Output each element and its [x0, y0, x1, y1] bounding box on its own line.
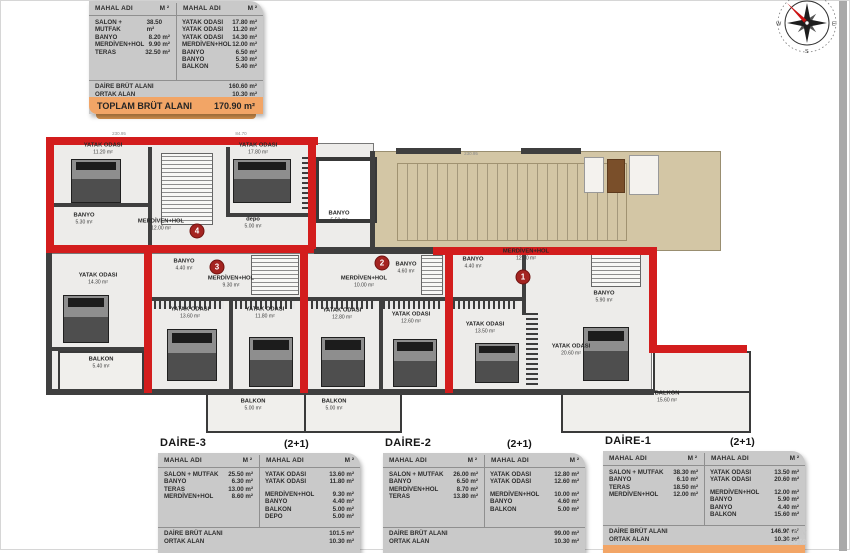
table-left-column: SALON + MUTFAK38.30 m² BANYO6.10 m² TERA… — [603, 469, 704, 518]
column-header-unit: M ² — [673, 455, 703, 462]
gross-area-label: DAİRE BRÜT ALANI — [95, 83, 154, 91]
wardrobe-icon — [526, 313, 538, 385]
room-area: 20.60 m² — [774, 476, 799, 483]
dimension-label: 230.95 — [112, 131, 126, 136]
total-row-strip — [603, 545, 805, 553]
room-area: 4.60 m² — [396, 268, 417, 274]
table-row: SALON + MUTFAK38.30 m² — [603, 469, 704, 476]
room-area: 17.80 m² — [239, 149, 278, 155]
red-wall-segment — [46, 137, 54, 253]
column-header: MAHAL ADI — [89, 5, 145, 12]
table-row: BANYO5.90 m² — [704, 496, 805, 503]
room-name: YATAK ODASI — [265, 471, 306, 478]
room-area: 13.60 m² — [329, 471, 354, 478]
common-area-row: ORTAK ALAN10.30 m² — [603, 536, 805, 544]
table-right-column: YATAK ODASI12.80 m² YATAK ODASI12.60 m² … — [484, 471, 585, 513]
apartment-type: (2+1) — [507, 438, 532, 450]
room-name: YATAK ODASI — [182, 19, 223, 26]
table-row: YATAK ODASI11.80 m² — [259, 478, 360, 485]
room-name: DEPO — [265, 513, 283, 520]
room-area: 6.50 m² — [457, 478, 478, 485]
room-name: BALKON — [89, 357, 114, 363]
table-row: BANYO4.40 m² — [259, 498, 360, 505]
room-area: 5.00 m² — [333, 513, 354, 520]
wardrobe-icon — [453, 301, 517, 309]
room-area: 11.80 m² — [246, 313, 285, 319]
room-area: 5.40 m² — [89, 363, 114, 369]
column-header-unit: M ² — [145, 5, 175, 12]
table-row: BANYO6.50 m² — [383, 478, 484, 485]
gross-area-row: DAİRE BRÜT ALANI101.5 m² — [158, 530, 360, 538]
gross-area-row: DAİRE BRÜT ALANI146.90 m² — [603, 528, 805, 536]
room-name: MERDİVEN+HOL — [265, 491, 314, 498]
room-name: BALKON — [490, 506, 516, 513]
total-label: TOPLAM BRÜT ALANI — [97, 101, 192, 111]
table-row: MERDİVEN+HOL8.60 m² — [158, 493, 259, 500]
table-row: BANYO8.20 m² — [89, 34, 176, 41]
column-header-unit: M ² — [775, 455, 805, 462]
table-icon — [607, 159, 625, 193]
room-label: YATAK ODASI13.60 m² — [171, 307, 210, 320]
room-name: BALKON — [655, 391, 680, 397]
table-row: SALON + MUTFAK25.50 m² — [158, 471, 259, 478]
room-area: 13.50 m² — [774, 469, 799, 476]
room-name: BANYO — [490, 498, 512, 505]
red-wall-segment — [649, 247, 657, 353]
wall-segment — [226, 147, 230, 215]
table-row: TERAS13.00 m² — [158, 486, 259, 493]
room-area: 9.90 m² — [149, 41, 170, 48]
room-name: BANYO — [95, 34, 117, 41]
room-area: 12.60 m² — [554, 478, 579, 485]
room-area: 4.40 m² — [174, 265, 195, 271]
table-row: BALKON5.00 m² — [259, 506, 360, 513]
gross-area-value: 99.00 m² — [554, 530, 579, 538]
room-name: MERDİVEN+HOL — [182, 41, 231, 48]
room-name: BANYO — [710, 496, 732, 503]
common-area-value: 10.30 m² — [329, 538, 354, 546]
room-label: BANYO5.30 m² — [74, 213, 95, 226]
gross-area-label: DAİRE BRÜT ALANI — [389, 530, 448, 538]
room-label: BANYO4.60 m² — [396, 262, 417, 275]
room-name: SALON + MUTFAK — [164, 471, 218, 478]
room-area: 5.00 m² — [241, 405, 266, 411]
table-row: TERAS13.80 m² — [383, 493, 484, 500]
table-right-column: YATAK ODASI13.60 m² YATAK ODASI11.80 m² … — [259, 471, 360, 520]
column-divider — [704, 453, 705, 525]
table-row: BALKON15.60 m² — [704, 511, 805, 518]
room-area: 5.90 m² — [778, 496, 799, 503]
room-label: BANYO5.50 m² — [329, 211, 350, 224]
room-label: MERDİVEN+HOL10.00 m² — [341, 276, 387, 289]
lounger-icon — [629, 155, 659, 195]
table-footer: DAİRE BRÜT ALANI99.00 m² ORTAK ALAN10.30… — [383, 527, 585, 545]
room-name: MERDİVEN+HOL — [609, 491, 658, 498]
table-row: YATAK ODASI11.20 m² — [176, 26, 263, 33]
red-wall-segment — [649, 345, 747, 353]
wall-segment — [226, 213, 314, 217]
room-area: 11.20 m² — [84, 149, 123, 155]
gross-area-row: DAİRE BRÜT ALANI160.60 m² — [89, 83, 263, 91]
room-label: BALKON5.00 m² — [241, 399, 266, 412]
room-area: 20.60 m² — [552, 350, 591, 356]
room-name: BANYO — [609, 476, 631, 483]
table-row: YATAK ODASI13.60 m² — [259, 471, 360, 478]
total-gross-area-row: TOPLAM BRÜT ALANI170.90 m² — [89, 97, 263, 114]
room-name: YATAK ODASI — [710, 476, 751, 483]
apartment-type: (2+1) — [730, 436, 755, 448]
table-row: YATAK ODASI13.50 m² — [704, 469, 805, 476]
column-header-unit: M ² — [233, 5, 263, 12]
daire-1-table: MAHAL ADI M ² MAHAL ADI M ² SALON + MUTF… — [603, 451, 805, 553]
table-row: SALON + MUTFAK38.50 m² — [89, 19, 176, 34]
room-name: YATAK ODASI — [323, 308, 362, 314]
room-label: MERDİVEN+HOL9.30 m² — [208, 276, 254, 289]
room-label: YATAK ODASI14.30 m² — [79, 273, 118, 286]
room-name: BANYO — [74, 213, 95, 219]
room-area: 13.50 m² — [466, 328, 505, 334]
red-wall-segment — [308, 137, 316, 249]
room-name: BALKON — [265, 506, 291, 513]
wall-segment — [50, 203, 150, 207]
room-area: 8.70 m² — [457, 486, 478, 493]
table-row: MERDİVEN+HOL12.00 m² — [704, 489, 805, 496]
bed-icon — [249, 337, 293, 387]
room-area: 12.60 m² — [392, 318, 431, 324]
room-name: BALKON — [710, 511, 736, 518]
column-header-unit: M ² — [330, 457, 360, 464]
red-wall-segment — [46, 245, 314, 253]
room-area: 4.60 m² — [558, 498, 579, 505]
room-label: MERDİVEN+HOL12.00 m² — [138, 219, 184, 232]
wall-segment — [379, 299, 383, 391]
room-name: MERDİVEN+HOL — [710, 489, 759, 496]
compass-south-label: S — [805, 49, 809, 55]
room-area: 5.50 m² — [329, 217, 350, 223]
room-name: MERDİVEN+HOL — [389, 486, 438, 493]
room-area: 12.00 m² — [503, 255, 549, 261]
room-label: YATAK ODASI11.80 m² — [246, 307, 285, 320]
room-name: MERDİVEN+HOL — [164, 493, 213, 500]
room-name: BANYO — [396, 262, 417, 268]
room-name: MERDİVEN+HOL — [490, 491, 539, 498]
table-row: MERDİVEN+HOL12.00 m² — [176, 41, 263, 48]
wall-segment — [229, 299, 233, 391]
room-name: YATAK ODASI — [490, 478, 531, 485]
common-area-label: ORTAK ALAN — [609, 536, 649, 544]
stairs-icon — [591, 253, 641, 287]
common-area-value: 10.30 m² — [554, 538, 579, 546]
bed-icon — [321, 337, 365, 387]
table-row: YATAK ODASI17.80 m² — [176, 19, 263, 26]
room-area: 13.00 m² — [228, 486, 253, 493]
wall-segment — [314, 247, 436, 254]
room-label: BANYO5.90 m² — [594, 291, 615, 304]
lounger-icon — [584, 157, 604, 193]
column-header-unit: M ² — [555, 457, 585, 464]
red-wall-segment — [300, 253, 308, 393]
room-name: BANYO — [329, 211, 350, 217]
daire-3-table: MAHAL ADI M ² MAHAL ADI M ² SALON + MUTF… — [158, 453, 360, 553]
table-footer: DAİRE BRÜT ALANI160.60 m² ORTAK ALAN10.3… — [89, 80, 263, 98]
stairs-icon — [251, 255, 299, 295]
room-name: YATAK ODASI — [710, 469, 751, 476]
wall-segment — [370, 151, 375, 249]
unit-number-badge: 1 — [516, 270, 531, 285]
room-area: 32.50 m² — [145, 49, 170, 56]
room-name: MERDİVEN+HOL — [95, 41, 144, 48]
room-area: 6.10 m² — [677, 476, 698, 483]
room-name: BANYO — [174, 259, 195, 265]
room-label: YATAK ODASI11.20 m² — [84, 143, 123, 156]
wall-segment — [521, 148, 581, 154]
column-header-unit: M ² — [453, 457, 483, 464]
bed-icon — [393, 339, 437, 387]
table-footer: DAİRE BRÜT ALANI101.5 m² ORTAK ALAN10.30… — [158, 527, 360, 545]
column-divider — [484, 455, 485, 527]
room-area: 5.00 m² — [333, 506, 354, 513]
table-row: BALKON5.40 m² — [176, 63, 263, 70]
table-row: BANYO4.40 m² — [704, 504, 805, 511]
bed-icon — [167, 329, 217, 381]
room-name: YATAK ODASI — [490, 471, 531, 478]
room-name: YATAK ODASI — [182, 34, 223, 41]
page: { "table_header": {"col": "MAHAL ADI", "… — [0, 0, 850, 550]
bed-icon — [233, 159, 291, 203]
room-name: BANYO — [182, 56, 204, 63]
room-area: 6.30 m² — [232, 478, 253, 485]
room-name: MERDİVEN+HOL — [503, 249, 549, 255]
table-row: SALON + MUTFAK26.00 m² — [383, 471, 484, 478]
unit-number-badge: 4 — [190, 224, 205, 239]
unit-number-badge: 2 — [375, 256, 390, 271]
room-area: 15.60 m² — [655, 397, 680, 403]
table-row: DEPO5.00 m² — [259, 513, 360, 520]
red-wall-segment — [144, 253, 152, 393]
gross-area-value: 101.5 m² — [329, 530, 354, 538]
room-area: 8.60 m² — [232, 493, 253, 500]
room-name: TERAS — [609, 484, 630, 491]
wall-segment — [453, 297, 524, 301]
room-label: BANYO4.40 m² — [463, 257, 484, 270]
stairs-icon — [161, 153, 213, 225]
room-area: 5.00 m² — [322, 405, 347, 411]
wardrobe-icon — [383, 301, 441, 309]
gross-area-label: DAİRE BRÜT ALANI — [164, 530, 223, 538]
wall-segment — [46, 253, 52, 393]
room-label: depo5.00 m² — [245, 217, 262, 230]
room-area: 9.30 m² — [333, 491, 354, 498]
room-area: 11.20 m² — [233, 26, 257, 33]
wall-segment — [50, 347, 146, 351]
apartment-type: (2+1) — [284, 438, 309, 450]
room-name: MERDİVEN+HOL — [341, 276, 387, 282]
room-name: BALKON — [322, 399, 347, 405]
room-label: YATAK ODASI17.80 m² — [239, 143, 278, 156]
table-row: BANYO6.50 m² — [176, 49, 263, 56]
common-area-label: ORTAK ALAN — [164, 538, 204, 546]
room-name: YATAK ODASI — [246, 307, 285, 313]
apartment-title: DAİRE-2 — [385, 437, 431, 449]
table-row: MERDİVEN+HOL10.00 m² — [484, 491, 585, 498]
wall-segment — [46, 389, 150, 395]
dimension-label: 230.95 — [464, 151, 478, 156]
room-name: SALON + MUTFAK — [609, 469, 663, 476]
table-row: BALKON5.00 m² — [484, 506, 585, 513]
compass-west-label: W — [776, 22, 782, 28]
column-header: MAHAL ADI — [258, 457, 330, 464]
room-name: BALKON — [182, 63, 208, 70]
table-row: YATAK ODASI20.60 m² — [704, 476, 805, 483]
apartment-title: DAİRE-1 — [605, 435, 651, 447]
room-name: YATAK ODASI — [265, 478, 306, 485]
watermark-line: Activ — [787, 527, 807, 537]
column-header: MAHAL ADI — [158, 457, 228, 464]
table-left-column: SALON + MUTFAK38.50 m² BANYO8.20 m² MERD… — [89, 19, 176, 71]
room-area: 5.40 m² — [236, 63, 257, 70]
room-name: BANYO — [594, 291, 615, 297]
room-area: 12.00 m² — [232, 41, 257, 48]
table-row: YATAK ODASI12.80 m² — [484, 471, 585, 478]
room-area: 12.80 m² — [554, 471, 579, 478]
table-row: BANYO6.10 m² — [603, 476, 704, 483]
gross-area-value: 160.60 m² — [229, 83, 257, 91]
room-area: 18.50 m² — [673, 484, 698, 491]
table-row: BANYO4.60 m² — [484, 498, 585, 505]
table-footer: DAİRE BRÜT ALANI146.90 m² ORTAK ALAN10.3… — [603, 525, 805, 543]
wall-segment — [150, 389, 654, 395]
room-area: 5.00 m² — [558, 506, 579, 513]
wall-segment — [396, 148, 461, 154]
column-divider — [259, 455, 260, 527]
room-name: YATAK ODASI — [392, 312, 431, 318]
table-row: YATAK ODASI14.30 m² — [176, 34, 263, 41]
red-wall-segment — [445, 253, 453, 393]
common-area-row: ORTAK ALAN10.30 m² — [158, 538, 360, 546]
room-area: 8.20 m² — [149, 34, 170, 41]
bed-icon — [71, 159, 121, 203]
room-name: depo — [246, 217, 260, 223]
column-header: MAHAL ADI — [483, 457, 555, 464]
stairs-icon — [421, 255, 443, 295]
table-row: TERAS32.50 m² — [89, 49, 176, 56]
balcony-floor — [304, 393, 402, 433]
room-area: 14.30 m² — [232, 34, 257, 41]
room-area: 9.30 m² — [208, 282, 254, 288]
column-header: MAHAL ADI — [703, 455, 775, 462]
room-name: BANYO — [265, 498, 287, 505]
apartment-title: DAİRE-3 — [160, 437, 206, 449]
compass-east-label: E — [832, 22, 836, 28]
room-name: SALON + MUTFAK — [95, 19, 147, 34]
room-area: 11.80 m² — [330, 478, 354, 485]
room-area: 5.30 m² — [236, 56, 257, 63]
room-name: MERDİVEN+HOL — [208, 276, 254, 282]
room-area: 38.30 m² — [673, 469, 698, 476]
activation-watermark: Activ Go to — [787, 527, 807, 547]
dimension-label: 84.70 — [235, 131, 246, 136]
table-left-column: SALON + MUTFAK25.50 m² BANYO6.30 m² TERA… — [158, 471, 259, 520]
room-area: 6.50 m² — [236, 49, 257, 56]
compass-rose-icon: W E S — [773, 0, 841, 57]
room-area: 5.90 m² — [594, 297, 615, 303]
vertical-scrollbar[interactable] — [839, 1, 847, 551]
column-header: MAHAL ADI — [603, 455, 673, 462]
room-name: MERDİVEN+HOL — [138, 219, 184, 225]
room-area: 13.60 m² — [171, 313, 210, 319]
room-name: BALKON — [241, 399, 266, 405]
table-row: MERDİVEN+HOL9.90 m² — [89, 41, 176, 48]
room-name: YATAK ODASI — [79, 273, 118, 279]
wall-segment — [148, 147, 152, 247]
table-row: BANYO5.30 m² — [176, 56, 263, 63]
room-area: 15.60 m² — [774, 511, 799, 518]
table-right-column: YATAK ODASI17.80 m² YATAK ODASI11.20 m² … — [176, 19, 263, 71]
room-name: BANYO — [164, 478, 186, 485]
room-name: TERAS — [95, 49, 116, 56]
room-name: YATAK ODASI — [171, 307, 210, 313]
room-area: 17.80 m² — [232, 19, 257, 26]
room-name: TERAS — [389, 493, 410, 500]
table-row: BANYO6.30 m² — [158, 478, 259, 485]
daire-2-table: MAHAL ADI M ² MAHAL ADI M ² SALON + MUTF… — [383, 453, 585, 553]
room-area: 12.80 m² — [323, 314, 362, 320]
gross-area-label: DAİRE BRÜT ALANI — [609, 528, 668, 536]
column-divider — [176, 3, 177, 80]
bed-icon — [63, 295, 109, 343]
total-value: 170.90 m² — [214, 101, 255, 111]
room-name: BANYO — [463, 257, 484, 263]
room-name: YATAK ODASI — [182, 26, 223, 33]
room-area: 14.30 m² — [79, 279, 118, 285]
room-label: YATAK ODASI12.60 m² — [392, 312, 431, 325]
room-area: 25.50 m² — [228, 471, 253, 478]
room-area: 4.40 m² — [463, 263, 484, 269]
room-label: BALKON5.40 m² — [89, 357, 114, 370]
table-row: MERDİVEN+HOL12.00 m² — [603, 491, 704, 498]
room-area: 12.00 m² — [774, 489, 799, 496]
wall-segment — [152, 297, 300, 301]
wall-segment — [308, 297, 446, 301]
room-label: BANYO4.40 m² — [174, 259, 195, 272]
summary-area-table: MAHAL ADI M ² MAHAL ADI M ² SALON + MUTF… — [89, 1, 263, 114]
common-area-row: ORTAK ALAN10.30 m² — [383, 538, 585, 546]
room-area: 26.00 m² — [453, 471, 478, 478]
room-name: BANYO — [710, 504, 732, 511]
room-label: YATAK ODASI12.80 m² — [323, 308, 362, 321]
room-area: 38.50 m² — [147, 19, 170, 34]
watermark-line: Go to — [787, 537, 807, 547]
unit-number-badge: 3 — [210, 260, 225, 275]
room-name: YATAK ODASI — [466, 322, 505, 328]
room-label: MERDİVEN+HOL12.00 m² — [503, 249, 549, 262]
room-label: YATAK ODASI13.50 m² — [466, 322, 505, 335]
room-area: 5.30 m² — [74, 219, 95, 225]
gross-area-row: DAİRE BRÜT ALANI99.00 m² — [383, 530, 585, 538]
room-name: BANYO — [182, 49, 204, 56]
room-area: 5.00 m² — [245, 223, 262, 229]
bed-icon — [475, 343, 519, 383]
column-header-unit: M ² — [228, 457, 258, 464]
table-row: MERDİVEN+HOL8.70 m² — [383, 486, 484, 493]
column-header: MAHAL ADI — [175, 5, 233, 12]
room-name: BANYO — [389, 478, 411, 485]
room-name: YATAK ODASI — [552, 344, 591, 350]
table-accent-bar — [96, 114, 256, 119]
room-area: 12.00 m² — [138, 225, 184, 231]
room-name: TERAS — [164, 486, 185, 493]
room-name: SALON + MUTFAK — [389, 471, 443, 478]
